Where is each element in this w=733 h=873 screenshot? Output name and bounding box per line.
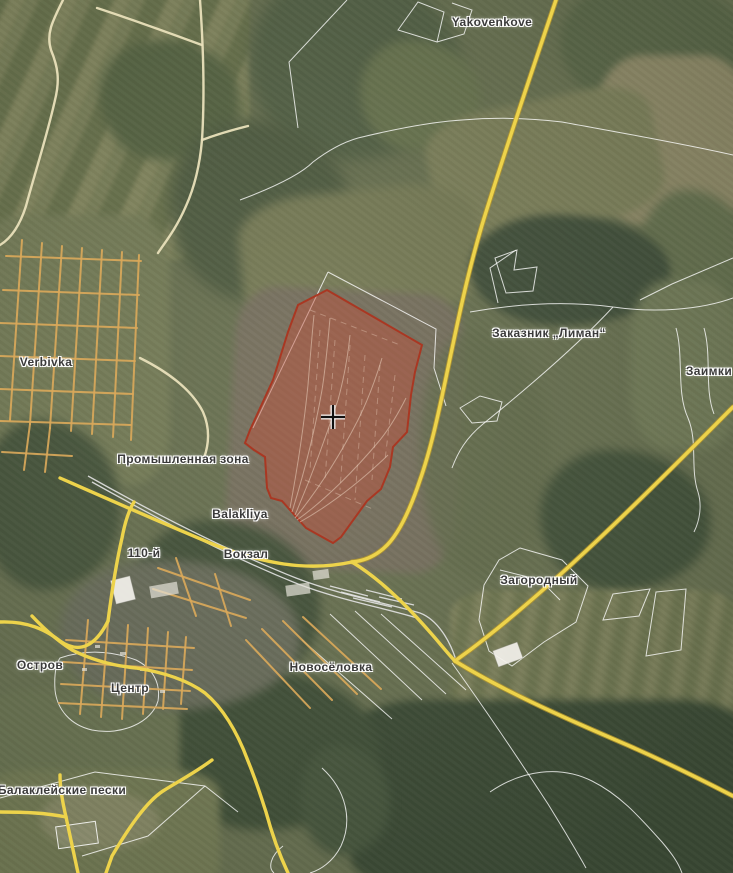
railway-line — [88, 476, 456, 660]
rural-roads — [0, 0, 248, 458]
building-footprints — [56, 569, 523, 849]
map-feature-layer — [0, 0, 733, 873]
satellite-map-viewport[interactable]: Yakovenkove Verbivka Промышленная зона B… — [0, 0, 733, 873]
